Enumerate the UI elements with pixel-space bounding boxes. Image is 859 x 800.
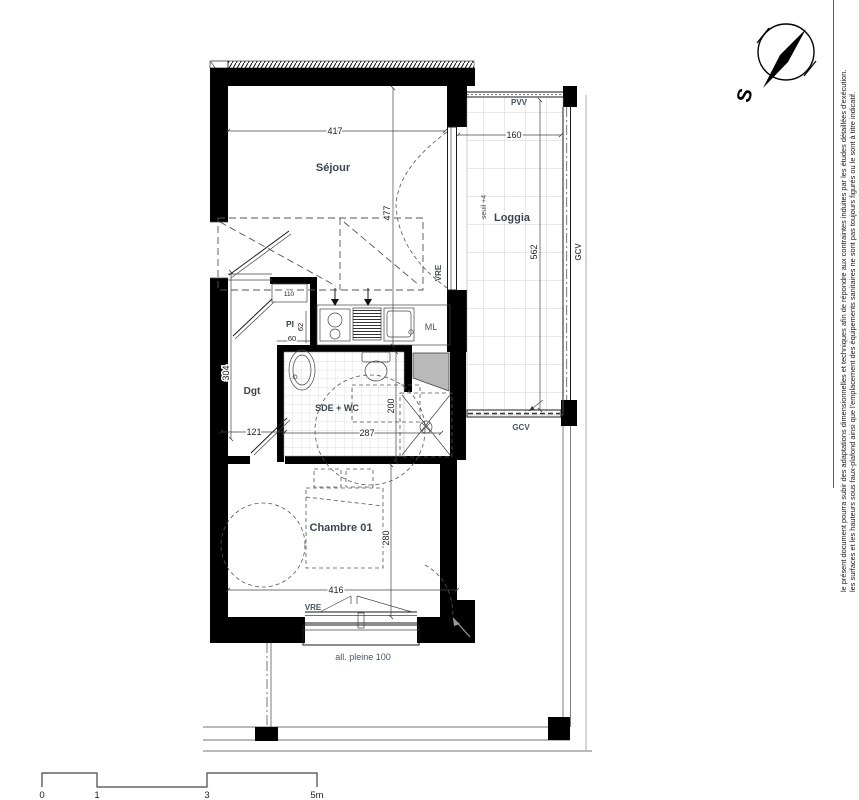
dim-160: 160: [506, 130, 521, 140]
gcv-label-right: GCV: [574, 243, 583, 261]
loggia-tile-floor: [467, 97, 563, 415]
dim-121: 121: [246, 427, 261, 437]
disclaimer-line1: le présent document pourra subir des ada…: [839, 70, 848, 592]
loggia-top-edge: [467, 92, 563, 97]
pi-door-leaf: [233, 299, 274, 339]
room-label-loggia: Loggia: [494, 212, 531, 224]
kitchen-hob: [320, 309, 350, 341]
extraction-arrows: [331, 288, 372, 306]
dgt-beam-lines: [228, 274, 272, 280]
dim-62: 62: [296, 323, 305, 331]
room-label-sejour: Séjour: [316, 162, 351, 174]
room-sde-wc: SDE + WC: [284, 350, 452, 485]
allege-label: all. pleine 100: [335, 652, 391, 662]
room-label-sde: SDE + WC: [315, 403, 359, 413]
niche-dim-110: 110: [284, 291, 295, 298]
vre-label-sejour: VRE: [434, 264, 443, 281]
kitchen: ML: [317, 288, 450, 345]
dim-287: 287: [359, 428, 374, 438]
shower: [400, 393, 452, 457]
dim-304: 304: [221, 365, 231, 380]
south-letter: S: [733, 86, 758, 105]
pvv-label: PVV: [511, 98, 528, 107]
scale-5m: 5m: [310, 790, 323, 800]
window-opening-arcs: [396, 132, 447, 288]
window-opening-triangles: [320, 596, 412, 612]
kitchen-sink: [384, 308, 414, 341]
ceiling-soffit-dashes: [218, 218, 423, 290]
dim-200: 200: [386, 398, 396, 413]
floor-plan-page: Séjour VRE: [0, 0, 859, 800]
room-label-dgt: Dgt: [244, 386, 261, 397]
dim-562: 562: [529, 244, 539, 259]
loggia-right-railing: [563, 107, 571, 400]
gcv-label-bottom: GCV: [512, 423, 530, 432]
room-label-chambre: Chambre 01: [310, 522, 373, 534]
dim-280: 280: [381, 530, 391, 545]
room-sejour: Séjour: [218, 132, 447, 290]
bed: [306, 469, 383, 568]
room-label-pi: PI: [286, 319, 294, 329]
scale-1: 1: [94, 790, 99, 800]
seuil-label: seuil +4: [481, 195, 488, 219]
ml-label: ML: [425, 322, 438, 332]
disclaimer-block: le présent document pourra subir des ada…: [834, 0, 858, 592]
window-vre-sejour: VRE: [434, 127, 457, 290]
dim-417: 417: [327, 126, 342, 136]
dim-416: 416: [328, 585, 343, 595]
dim-60: 60: [288, 334, 296, 343]
dim-477: 477: [382, 205, 392, 220]
scale-3: 3: [204, 790, 209, 800]
compass-rose: S: [733, 24, 816, 105]
vre-label-chambre: VRE: [305, 603, 322, 612]
scale-0: 0: [39, 790, 44, 800]
room-loggia: Loggia PVV seuil +4 GCV GCV: [467, 92, 583, 432]
turning-circle-chambre: [221, 503, 305, 587]
kitchen-worktop-grille: [353, 308, 381, 340]
floor-plan-canvas: Séjour VRE: [0, 0, 859, 800]
disclaimer-line2: les surfaces et les hauteurs sous faux-p…: [848, 92, 857, 592]
entrance-door-leaf: [210, 222, 291, 278]
north-needle: [763, 29, 806, 88]
scale-bar: 0 1 3 5m: [39, 773, 323, 800]
